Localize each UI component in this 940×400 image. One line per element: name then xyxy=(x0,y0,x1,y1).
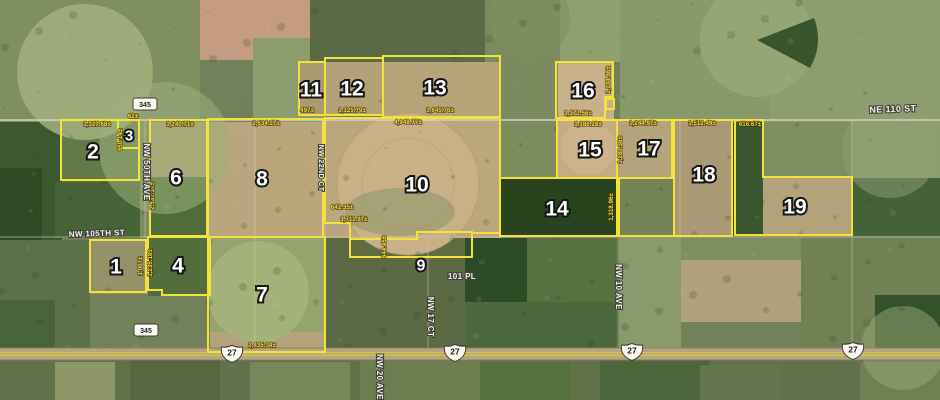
road-label-nw-22nd-ct: NW 22ND CT xyxy=(317,145,324,192)
road-label-nw-50th-ave: NW 50TH AVE xyxy=(142,143,151,201)
parcel-8-number: 8 xyxy=(256,167,268,190)
shield-number: 27 xyxy=(848,345,858,355)
parcel-area-label: 644.45± xyxy=(381,235,388,258)
shield-number: 27 xyxy=(450,347,460,357)
parcel-area-label: 1,235.18± xyxy=(147,249,154,277)
terrain-field xyxy=(55,362,115,400)
parcel-area-label: 650.14± xyxy=(117,128,124,151)
terrain-field xyxy=(681,260,801,322)
parcel-1-number: 1 xyxy=(110,255,122,278)
road-label-101-pl: 101 PL xyxy=(448,272,476,281)
parcel-area-label: 1,034.66± xyxy=(605,66,612,94)
terrain-field xyxy=(619,238,681,350)
terrain-field xyxy=(310,0,485,62)
parcel-area-label: 497± xyxy=(300,107,314,114)
terrain-field xyxy=(465,302,619,352)
parcel-unnumbered-boundary[interactable] xyxy=(606,99,614,109)
terrain-field xyxy=(500,118,558,178)
parcel-area-label: 1,172.56± xyxy=(564,110,592,117)
terrain-field xyxy=(0,168,42,240)
parcel-14-number: 14 xyxy=(545,197,569,220)
highway-us27 xyxy=(0,348,940,360)
parcel-16-number: 16 xyxy=(571,79,594,102)
parcel-area-label: 1,186.28± xyxy=(574,121,602,128)
road-label-nw-17-ct: NW 17 CT xyxy=(426,297,435,338)
parcel-area-label: 1,645.76± xyxy=(426,107,454,114)
parcel-area-label: 4,948.77± xyxy=(394,119,422,126)
parcel-6-number: 6 xyxy=(170,166,182,189)
parcel-area-label: 1,327.68± xyxy=(83,121,111,128)
parcel-10-number: 10 xyxy=(405,173,428,196)
parcel-area-label: 2,435.34± xyxy=(248,342,276,349)
parcel-area-label: 616.67± xyxy=(739,121,762,128)
parcel-19-number: 19 xyxy=(783,195,806,218)
parcel-18-number: 18 xyxy=(692,163,716,186)
parcel-area-label: 1,318.96± xyxy=(608,193,615,221)
route-shield-345: 345 xyxy=(133,98,157,110)
terrain-field xyxy=(681,238,801,260)
terrain-field xyxy=(480,362,570,400)
road-label-nw-10-ave: NW 10 AVE xyxy=(614,264,623,310)
parcel-2-number: 2 xyxy=(87,140,99,163)
parcel-area-label: 62± xyxy=(128,113,139,120)
terrain-field xyxy=(763,122,853,178)
road-label-ne-110-st: NE 110 ST xyxy=(869,103,917,115)
terrain-pivot-field xyxy=(842,102,938,198)
parcel-12-number: 12 xyxy=(340,77,363,100)
terrain-field xyxy=(527,236,619,306)
shield-number: 345 xyxy=(139,102,151,109)
parcel-area-label: 1,007± xyxy=(137,256,144,275)
terrain-field xyxy=(700,365,780,400)
shield-number: 27 xyxy=(627,346,637,356)
parcel-unnumbered-boundary[interactable] xyxy=(617,178,674,236)
parcel-9-number: 9 xyxy=(417,258,426,275)
terrain-field xyxy=(250,362,350,400)
terrain-field xyxy=(130,360,220,400)
parcel-area-label: 2,634.27± xyxy=(252,120,280,127)
parcel-area-label: 1,244.97± xyxy=(629,120,657,127)
parcel-13-number: 13 xyxy=(423,76,446,99)
parcel-11-number: 11 xyxy=(300,78,323,101)
route-shield-345: 345 xyxy=(134,324,158,336)
satellite-map-canvas[interactable]: 1,007±1,327.68±62±650.14±1,235.18±1,240.… xyxy=(0,0,940,400)
parcel-4-number: 4 xyxy=(172,254,184,277)
parcel-7-number: 7 xyxy=(256,283,268,306)
shield-number: 27 xyxy=(227,348,237,358)
parcel-area-label: 1,711.97± xyxy=(340,216,368,223)
parcel-area-label: 642.35± xyxy=(331,204,354,211)
parcel-map: 1,007±1,327.68±62±650.14±1,235.18±1,240.… xyxy=(0,0,940,400)
shield-number: 345 xyxy=(140,328,152,335)
parcel-area-label: 1,280.36± xyxy=(617,136,624,164)
parcel-3-number: 3 xyxy=(125,127,133,144)
terrain-field xyxy=(600,360,710,400)
parcel-15-number: 15 xyxy=(578,138,602,161)
parcel-area-label: 1,240.71± xyxy=(166,121,194,128)
parcel-area-label: 1,512.49± xyxy=(688,120,716,127)
road-label-nw-20-ave: NW 20 AVE xyxy=(375,354,384,400)
parcel-17-number: 17 xyxy=(637,137,660,160)
parcel-area-label: 1,125.79± xyxy=(338,107,366,114)
